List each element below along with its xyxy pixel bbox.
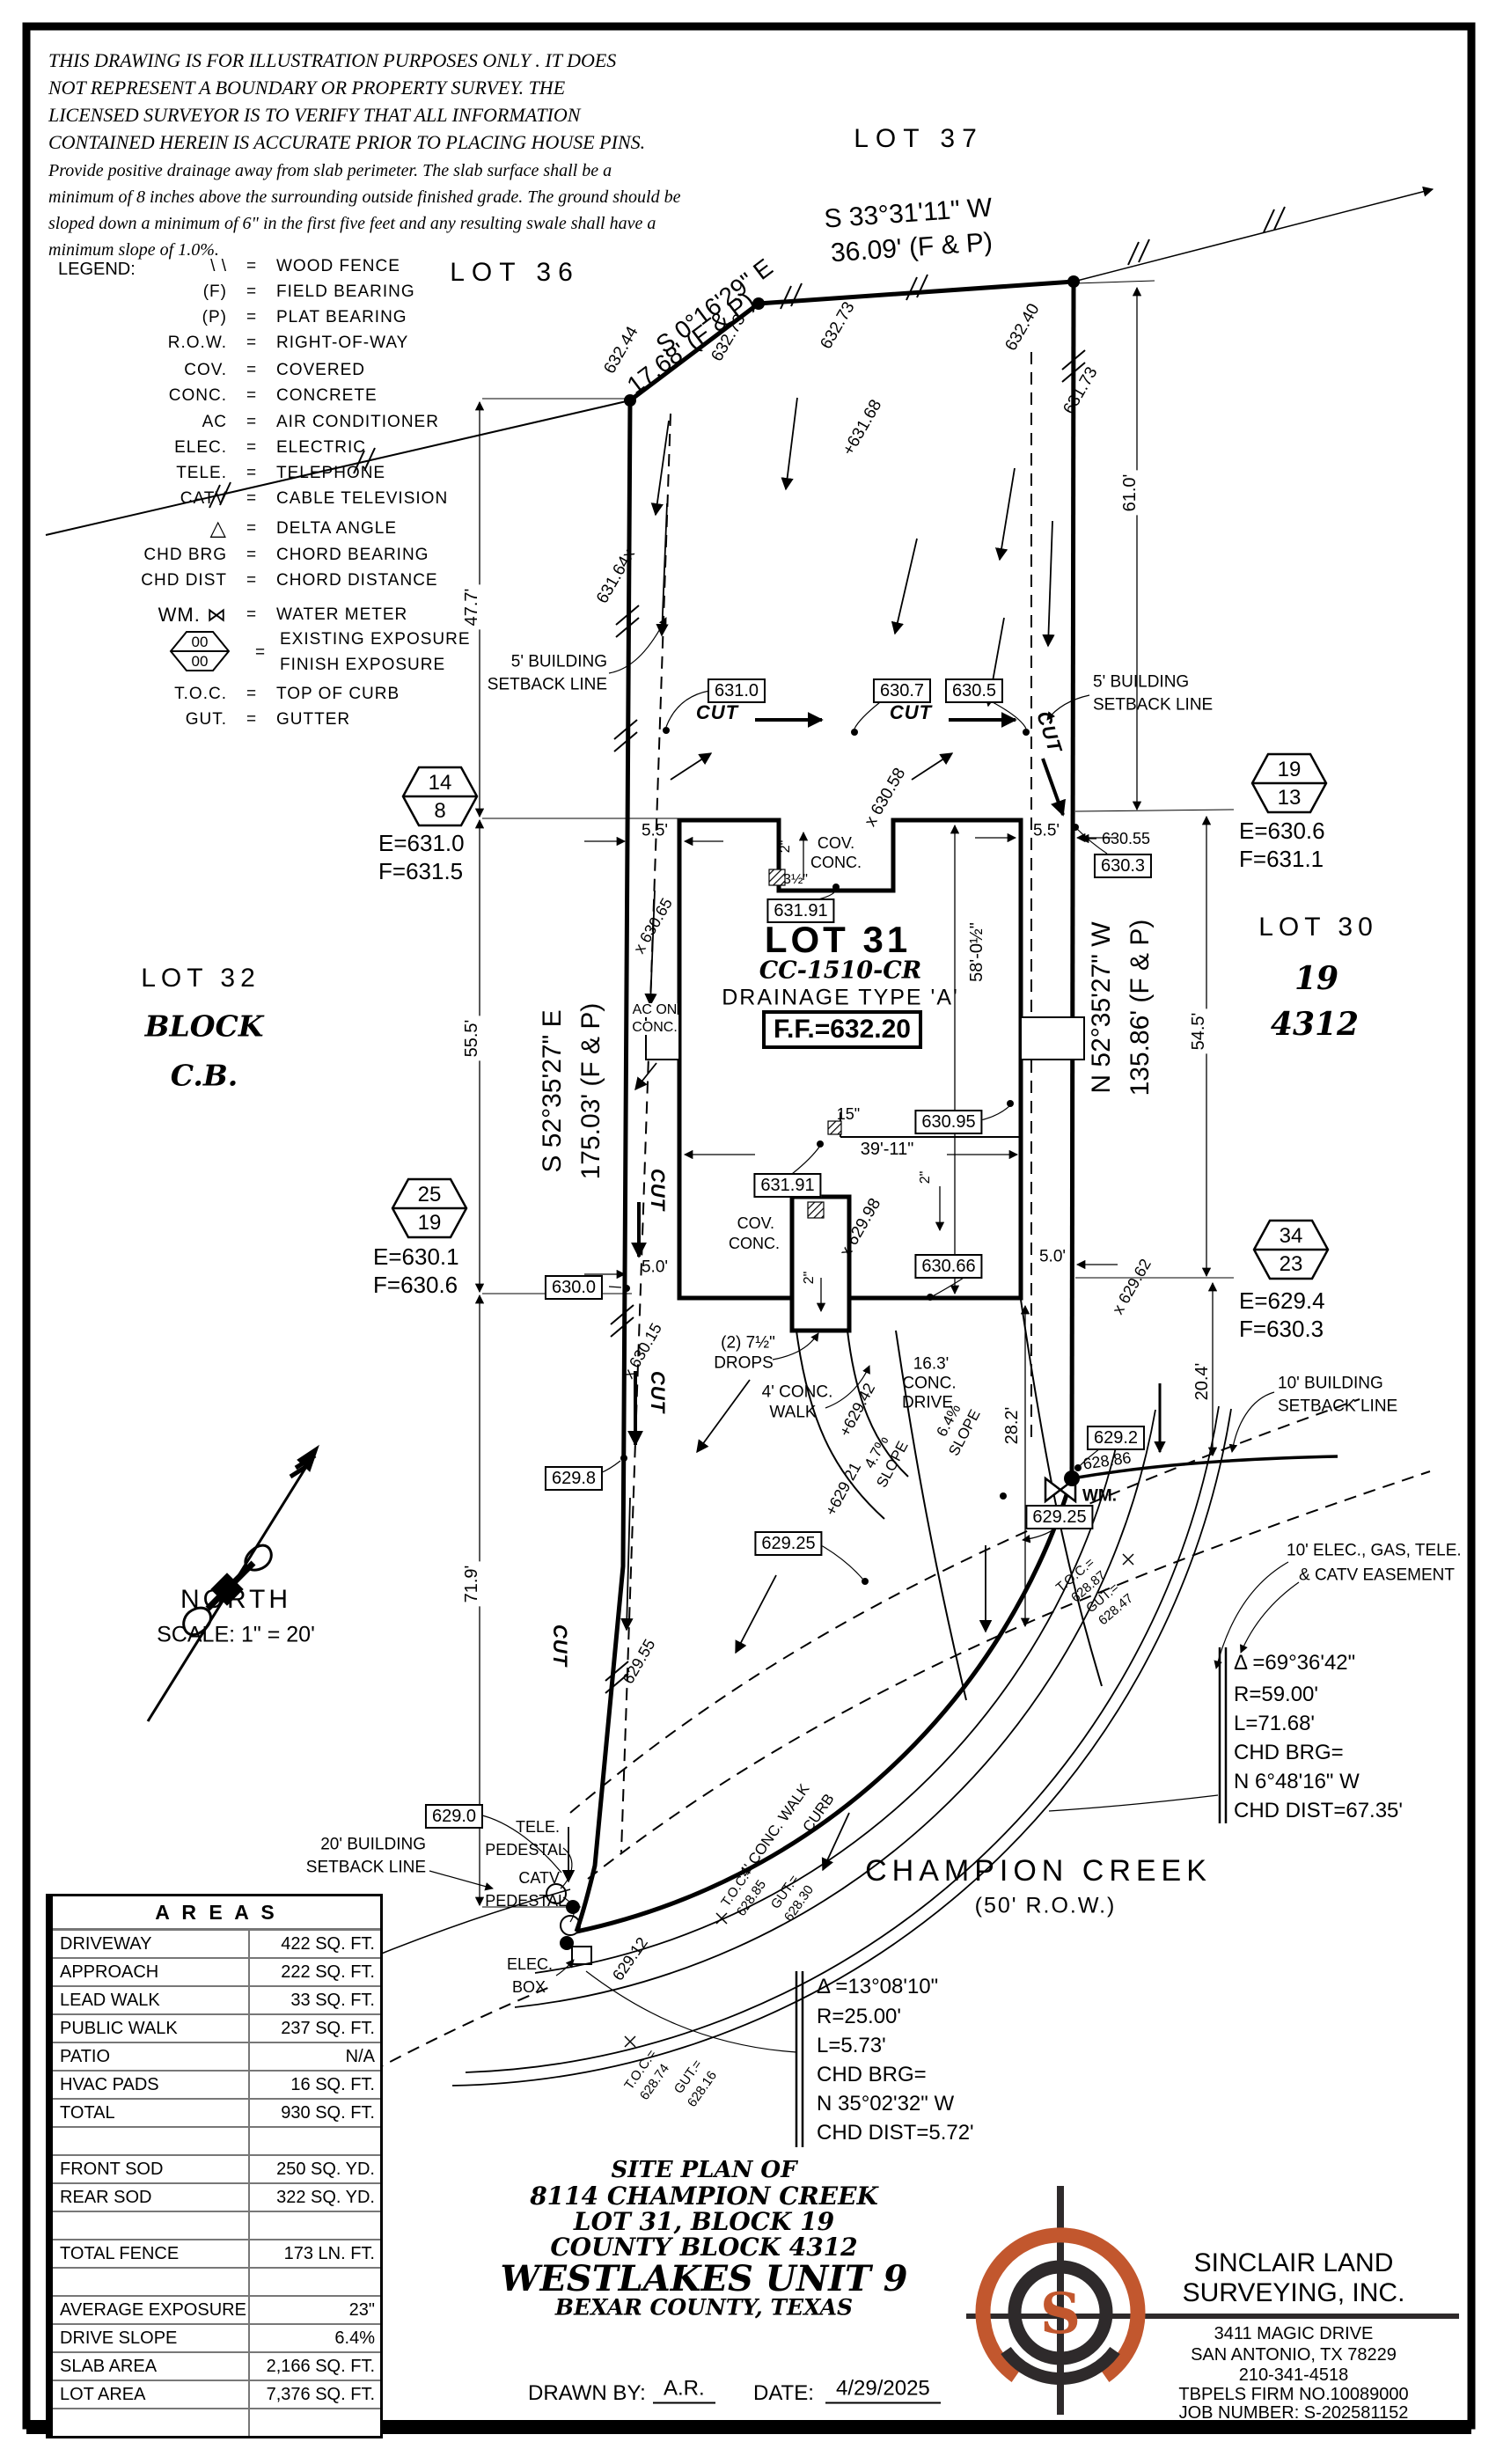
areas-table: A R E A S DRIVEWAY422 SQ. FT. APPROACH22… — [46, 1894, 383, 2438]
drops-label: DROPS — [714, 1355, 774, 1372]
hex-marker-value: 19 — [1278, 759, 1302, 781]
equals-sign: = — [227, 308, 276, 327]
dim-39-11: 39'-11" — [857, 1140, 918, 1158]
legend-symbol: GUT. — [55, 710, 227, 730]
title-subdivision: WESTLAKES UNIT 9 — [501, 2262, 908, 2297]
spot-elevation: 630.55 — [1102, 831, 1150, 847]
row-value: 222 SQ. FT. — [248, 1959, 380, 1985]
grade-box: 631.0 — [708, 678, 766, 703]
logo-letter: S — [1040, 2286, 1081, 2343]
curve2-delta: Δ =13°08'10" — [817, 1976, 938, 1998]
drawn-by-label: DRAWN BY: — [528, 2383, 646, 2404]
table-row: AVERAGE EXPOSURE23" — [53, 2297, 380, 2325]
grade-box: 629.2 — [1087, 1426, 1145, 1450]
table-row: SLAB AREA2,166 SQ. FT. — [53, 2353, 380, 2381]
equals-sign: = — [227, 571, 276, 590]
hex-grade: F=630.3 — [1239, 1317, 1324, 1340]
survey-sheet: THIS DRAWING IS FOR ILLUSTRATION PURPOSE… — [0, 0, 1496, 2464]
setback-10ft-label: 10' BUILDING — [1278, 1375, 1383, 1392]
table-row: FRONT SOD250 SQ. YD. — [53, 2156, 380, 2184]
row-value: N/A — [248, 2043, 380, 2070]
legend-row: AC=AIR CONDITIONER — [55, 413, 547, 432]
legend-symbol: \ \ — [55, 257, 227, 276]
legend-row: △=DELTA ANGLE — [55, 516, 547, 541]
grade-box: 630.3 — [1094, 854, 1152, 878]
disclaimer-line: LICENSED SURVEYOR IS TO VERIFY THAT ALL … — [48, 106, 580, 125]
lot31-title: LOT 31 — [765, 921, 911, 958]
table-row: PUBLIC WALK237 SQ. FT. — [53, 2015, 380, 2043]
table-row: DRIVE SLOPE6.4% — [53, 2325, 380, 2353]
table-row: TOTAL930 SQ. FT. — [53, 2100, 380, 2128]
lot30-block-label: 19 — [1294, 963, 1338, 994]
legend-desc: PLAT BEARING — [276, 308, 547, 327]
scale-label: SCALE: 1" = 20' — [157, 1624, 315, 1646]
lot36-label: LOT 36 — [450, 260, 580, 286]
grade-box: 630.7 — [873, 678, 931, 703]
hex-grade: F=630.6 — [373, 1273, 458, 1296]
equals-sign: = — [227, 710, 276, 730]
legend-row: CHD BRG=CHORD BEARING — [55, 546, 547, 565]
disclaimer-note: sloped down a minimum of 6" in the first… — [48, 215, 656, 232]
row-label: TOTAL — [53, 2100, 248, 2126]
legend-desc: CONCRETE — [276, 386, 547, 406]
table-row: DRIVEWAY422 SQ. FT. — [53, 1931, 380, 1959]
company-phone: 210-341-4518 — [1239, 2366, 1349, 2384]
row-label: FRONT SOD — [53, 2156, 248, 2182]
dim-54-5: 54.5' — [1190, 1009, 1207, 1054]
ac-on-conc: CONC. — [632, 1021, 678, 1035]
dim-2in-rear: 2" — [779, 840, 793, 854]
row-value: 173 LN. FT. — [248, 2240, 380, 2267]
legend-symbol: AC — [55, 413, 227, 432]
hex-marker-value: 14 — [429, 773, 452, 794]
table-row: LOT AREA7,376 SQ. FT. — [53, 2381, 380, 2409]
title-line: SITE PLAN OF — [611, 2159, 796, 2182]
lot30-cb-label: 4312 — [1271, 1008, 1359, 1040]
ac-on-conc: AC ON — [633, 1003, 678, 1017]
legend-desc: GUTTER — [276, 710, 547, 730]
lead-walk-label: WALK — [769, 1404, 816, 1421]
lot30-label: LOT 30 — [1258, 914, 1378, 941]
covered-conc-rear: CONC. — [810, 854, 862, 870]
conc-drive-label: CONC. — [902, 1375, 956, 1392]
street-name: CHAMPION CREEK — [865, 1856, 1212, 1886]
house-footprint — [646, 820, 1084, 1331]
dim-55-5: 55.5' — [463, 1016, 480, 1061]
dim-5-5-east: 5.5' — [1033, 823, 1060, 840]
grade-box: 629.25 — [754, 1531, 822, 1556]
x-ticks — [625, 1554, 1133, 2047]
cut-label: CUT — [550, 1624, 569, 1667]
dim-5-0-west: 5.0' — [642, 1259, 668, 1276]
table-row — [53, 2212, 380, 2240]
legend-row: TELE.=TELEPHONE — [55, 464, 547, 483]
dim-47-7: 47.7' — [463, 585, 480, 630]
row-value: 422 SQ. FT. — [248, 1931, 380, 1957]
grade-box: 630.0 — [545, 1275, 603, 1300]
company-name: SINCLAIR LAND — [1194, 2250, 1394, 2277]
date-label: DATE: — [753, 2383, 814, 2404]
hex-grade: E=630.6 — [1239, 819, 1325, 842]
hex-grade: E=629.4 — [1239, 1289, 1325, 1312]
dim-28-2: 28.2' — [1003, 1404, 1021, 1448]
lead-walk-label: 4' CONC. — [762, 1384, 833, 1401]
title-lot-block: LOT 31, BLOCK 19 — [574, 2210, 834, 2234]
row-label — [53, 2269, 248, 2295]
job-number: JOB NUMBER: S-202581152 — [1179, 2404, 1409, 2422]
dim-2in-garage: 2" — [919, 1171, 933, 1184]
equals-sign: = — [227, 685, 276, 704]
equals-sign: = — [227, 605, 276, 625]
legend-symbol: (P) — [55, 308, 227, 327]
disclaimer-note: Provide positive drainage away from slab… — [48, 162, 612, 180]
curve1-chd-brg-label: CHD BRG= — [1234, 1742, 1344, 1764]
hex-grade: E=630.1 — [373, 1245, 459, 1268]
catv-pedestal-label: PEDESTAL — [485, 1893, 567, 1909]
hex-grade: F=631.5 — [378, 860, 463, 883]
drainage-type: DRAINAGE TYPE 'A' — [722, 987, 959, 1009]
covered-conc-front: COV. — [737, 1215, 774, 1231]
row-label: DRIVE SLOPE — [53, 2325, 248, 2351]
legend-desc: COVERED — [276, 361, 547, 380]
tele-pedestal-label: TELE. — [516, 1819, 560, 1835]
water-meter-legend-icon: WM. ⋈ — [55, 604, 227, 627]
company-firm-no: TBPELS FIRM NO.10089000 — [1178, 2386, 1408, 2403]
row-label — [53, 2409, 248, 2436]
legend-row: GUT.=GUTTER — [55, 710, 547, 730]
legend-desc: DELTA ANGLE — [276, 519, 547, 539]
company-name: SURVEYING, INC. — [1183, 2280, 1405, 2306]
bearing-west: S 52°35'27" E — [539, 1009, 566, 1172]
legend-symbol: (F) — [55, 282, 227, 302]
legend-desc: EXISTING EXPOSURE — [280, 631, 471, 648]
legend-row: T.O.C.=TOP OF CURB — [55, 685, 547, 704]
disclaimer-note: minimum slope of 1.0%. — [48, 241, 219, 259]
curve2-radius: R=25.00' — [817, 2006, 901, 2028]
title-county-block: COUNTY BLOCK 4312 — [550, 2235, 857, 2260]
grade-box: 629.8 — [545, 1466, 603, 1491]
curve2-length: L=5.73' — [817, 2035, 886, 2057]
legend-symbol: ELEC. — [55, 438, 227, 458]
hex-marker-value: 23 — [1280, 1254, 1303, 1275]
curve1-delta: Δ =69°36'42" — [1234, 1653, 1355, 1674]
legend-symbol: TELE. — [55, 464, 227, 483]
dim-15: 15" — [837, 1106, 860, 1122]
exposure-bottom: 00 — [192, 653, 209, 670]
setback-20ft-label: 20' BUILDING — [320, 1837, 426, 1853]
street-row: (50' R.O.W.) — [975, 1896, 1117, 1918]
table-row — [53, 2269, 380, 2297]
legend-desc: AIR CONDITIONER — [276, 413, 547, 432]
legend-desc: CHORD BEARING — [276, 546, 547, 565]
title-county: BEXAR COUNTY, TEXAS — [555, 2297, 853, 2319]
setback-5ft-right-label: 5' BUILDING — [1093, 674, 1189, 691]
row-label: LEAD WALK — [53, 1987, 248, 2013]
equals-sign: = — [227, 489, 276, 509]
drawn-by-value: A.R. — [653, 2379, 715, 2404]
row-value: 2,166 SQ. FT. — [248, 2353, 380, 2380]
row-label: PUBLIC WALK — [53, 2015, 248, 2042]
grade-box: 630.66 — [914, 1254, 982, 1279]
hex-marker-value: 8 — [434, 801, 445, 822]
table-row: REAR SOD322 SQ. YD. — [53, 2184, 380, 2212]
grade-box: 630.95 — [914, 1110, 982, 1134]
row-value: 322 SQ. YD. — [248, 2184, 380, 2211]
legend-desc: ELECTRIC — [276, 438, 547, 458]
curve1-chd-brg: N 6°48'16" W — [1234, 1771, 1360, 1793]
legend-symbol: T.O.C. — [55, 685, 227, 704]
leader-lines — [429, 618, 1299, 2052]
dim-61-0: 61.0' — [1121, 471, 1139, 516]
table-row: LEAD WALK33 SQ. FT. — [53, 1987, 380, 2015]
bearing-east-dist: 135.86' (F & P) — [1127, 920, 1154, 1096]
lot32-label: LOT 32 — [141, 965, 260, 992]
legend-symbol: CATV — [55, 489, 227, 509]
row-value — [248, 2128, 380, 2154]
table-row: HVAC PADS16 SQ. FT. — [53, 2072, 380, 2100]
hex-grade: F=631.1 — [1239, 847, 1324, 870]
cut-label: CUT — [648, 1371, 667, 1413]
disclaimer-note: minimum of 8 inches above the surroundin… — [48, 188, 680, 206]
grade-box: 631.91 — [766, 898, 834, 923]
equals-sign: = — [227, 257, 276, 276]
lot31-plan-id: CC-1510-CR — [759, 959, 921, 983]
grade-box: 631.91 — [753, 1173, 821, 1198]
covered-conc-rear: COV. — [818, 835, 854, 851]
legend-row: CATV=CABLE TELEVISION — [55, 489, 547, 509]
north-label: NORTH — [180, 1587, 291, 1613]
legend-row: CONC.=CONCRETE — [55, 386, 547, 406]
dim-3half-rear: 3½" — [783, 873, 808, 887]
row-label: AVERAGE EXPOSURE — [53, 2297, 248, 2323]
row-label — [53, 2128, 248, 2154]
grade-box: 629.0 — [425, 1804, 483, 1829]
exposure-top: 00 — [192, 634, 209, 650]
elec-box-label: ELEC. — [507, 1956, 553, 1972]
lot32-cb-label: C.B. — [171, 1061, 238, 1090]
curve1-length: L=71.68' — [1234, 1713, 1315, 1734]
row-label: TOTAL FENCE — [53, 2240, 248, 2267]
legend-symbol: CHD DIST — [55, 571, 227, 590]
setback-10ft-label: SETBACK LINE — [1278, 1398, 1397, 1415]
drops-label: (2) 7½" — [721, 1335, 775, 1352]
dim-5-0-east: 5.0' — [1039, 1249, 1066, 1265]
legend-symbol: COV. — [55, 361, 227, 380]
row-value — [248, 2409, 380, 2436]
title-address: 8114 CHAMPION CREEK — [530, 2184, 878, 2209]
finished-floor-box: F.F.=632.20 — [762, 1010, 922, 1049]
hex-grade: E=631.0 — [378, 832, 465, 854]
tele-pedestal-label: PEDESTAL — [485, 1842, 567, 1858]
row-value: 237 SQ. FT. — [248, 2015, 380, 2042]
legend-symbol: R.O.W. — [55, 334, 227, 353]
areas-title: A R E A S — [53, 1896, 380, 1931]
legend-desc: CHORD DISTANCE — [276, 571, 547, 590]
row-label: HVAC PADS — [53, 2072, 248, 2098]
equals-sign: = — [255, 644, 265, 661]
row-value: 23" — [248, 2297, 380, 2323]
cut-label: CUT — [696, 703, 738, 722]
legend-desc: FINISH EXPOSURE — [280, 656, 445, 673]
curve2-chd-dist: CHD DIST=5.72' — [817, 2123, 974, 2144]
setback-5ft-left-label: SETBACK LINE — [488, 677, 607, 693]
legend-symbol: CONC. — [55, 386, 227, 406]
legend-row: (P)=PLAT BEARING — [55, 308, 547, 327]
curve1-chd-dist: CHD DIST=67.35' — [1234, 1800, 1403, 1822]
equals-sign: = — [227, 413, 276, 432]
legend-row: ELEC.=ELECTRIC — [55, 438, 547, 458]
date-value: 4/29/2025 — [825, 2379, 941, 2404]
setback-5ft-left-label: 5' BUILDING — [511, 654, 607, 671]
conc-drive-label: 16.3' — [913, 1356, 950, 1373]
lot37-label: LOT 37 — [854, 126, 984, 152]
table-row: APPROACH222 SQ. FT. — [53, 1959, 380, 1987]
legend-desc: TELEPHONE — [276, 464, 547, 483]
bearing-east: N 52°35'27" W — [1089, 921, 1115, 1093]
row-label — [53, 2212, 248, 2239]
row-value: 250 SQ. YD. — [248, 2156, 380, 2182]
setback-20ft-label: SETBACK LINE — [306, 1859, 426, 1876]
cut-label: CUT — [648, 1169, 667, 1211]
cut-label: CUT — [890, 703, 932, 722]
equals-sign: = — [227, 334, 276, 353]
row-value: 930 SQ. FT. — [248, 2100, 380, 2126]
row-value: 6.4% — [248, 2325, 380, 2351]
equals-sign: = — [227, 519, 276, 539]
row-value: 16 SQ. FT. — [248, 2072, 380, 2098]
dim-2in-front: 2" — [803, 1272, 817, 1285]
setback-5ft-right-label: SETBACK LINE — [1093, 697, 1213, 714]
table-row — [53, 2409, 380, 2436]
hex-marker-value: 13 — [1278, 788, 1302, 809]
table-row — [53, 2128, 380, 2156]
catv-pedestal-label: CATV — [518, 1870, 560, 1886]
legend-desc: WATER METER — [276, 605, 547, 625]
dim-20-4: 20.4' — [1193, 1360, 1211, 1404]
easement-label: & CATV EASEMENT — [1299, 1567, 1455, 1584]
grade-box: 630.5 — [945, 678, 1003, 703]
easement-label: 10' ELEC., GAS, TELE. — [1287, 1543, 1462, 1559]
north-arrow-icon — [148, 1446, 319, 1721]
hex-marker-value: 34 — [1280, 1226, 1303, 1247]
hex-marker-value: 19 — [418, 1213, 442, 1234]
legend-row: R.O.W.=RIGHT-OF-WAY — [55, 334, 547, 353]
legend-row: COV.=COVERED — [55, 361, 547, 380]
dim-5-5-west: 5.5' — [642, 823, 668, 840]
exposure-hexagon-icon: 00 00 — [165, 625, 234, 678]
row-label: LOT AREA — [53, 2381, 248, 2408]
curve2-chd-brg: N 35°02'32" W — [817, 2094, 954, 2115]
legend-desc: RIGHT-OF-WAY — [276, 334, 547, 353]
company-address: SAN ANTONIO, TX 78229 — [1191, 2346, 1397, 2364]
covered-conc-front: CONC. — [729, 1236, 780, 1251]
corner-dots — [560, 275, 1082, 1950]
row-label: DRIVEWAY — [53, 1931, 248, 1957]
table-row: PATION/A — [53, 2043, 380, 2072]
curve2-chd-brg-label: CHD BRG= — [817, 2064, 927, 2086]
equals-sign: = — [227, 464, 276, 483]
hex-marker-value: 25 — [418, 1184, 442, 1206]
delta-icon: △ — [55, 516, 227, 541]
equals-sign: = — [227, 386, 276, 406]
equals-sign: = — [227, 438, 276, 458]
row-value: 7,376 SQ. FT. — [248, 2381, 380, 2408]
dim-58-0: 58'-0½" — [968, 919, 986, 986]
row-value: 33 SQ. FT. — [248, 1987, 380, 2013]
company-address: 3411 MAGIC DRIVE — [1214, 2325, 1374, 2343]
row-label: APPROACH — [53, 1959, 248, 1985]
row-label: REAR SOD — [53, 2184, 248, 2211]
equals-sign: = — [227, 361, 276, 380]
equals-sign: = — [227, 546, 276, 565]
legend-symbol: CHD BRG — [55, 546, 227, 565]
disclaimer-line: THIS DRAWING IS FOR ILLUSTRATION PURPOSE… — [48, 51, 616, 70]
disclaimer-line: CONTAINED HEREIN IS ACCURATE PRIOR TO PL… — [48, 133, 645, 152]
curve1-radius: R=59.00' — [1234, 1684, 1318, 1705]
legend-desc: CABLE TELEVISION — [276, 489, 547, 509]
dim-71-9: 71.9' — [463, 1562, 480, 1607]
grade-box: 629.25 — [1025, 1505, 1093, 1529]
lot-boundary — [576, 282, 1338, 1932]
disclaimer-line: NOT REPRESENT A BOUNDARY OR PROPERTY SUR… — [48, 78, 565, 98]
bearing-west-dist: 175.03' (F & P) — [578, 1003, 605, 1180]
lot32-block-label: BLOCK — [145, 1012, 264, 1041]
row-label: PATIO — [53, 2043, 248, 2070]
equals-sign: = — [227, 282, 276, 302]
row-label: SLAB AREA — [53, 2353, 248, 2380]
row-value — [248, 2212, 380, 2239]
table-row: TOTAL FENCE173 LN. FT. — [53, 2240, 380, 2269]
water-meter-label: WM. — [1082, 1488, 1117, 1505]
row-value — [248, 2269, 380, 2295]
elec-box-label: BOX — [512, 1979, 546, 1995]
